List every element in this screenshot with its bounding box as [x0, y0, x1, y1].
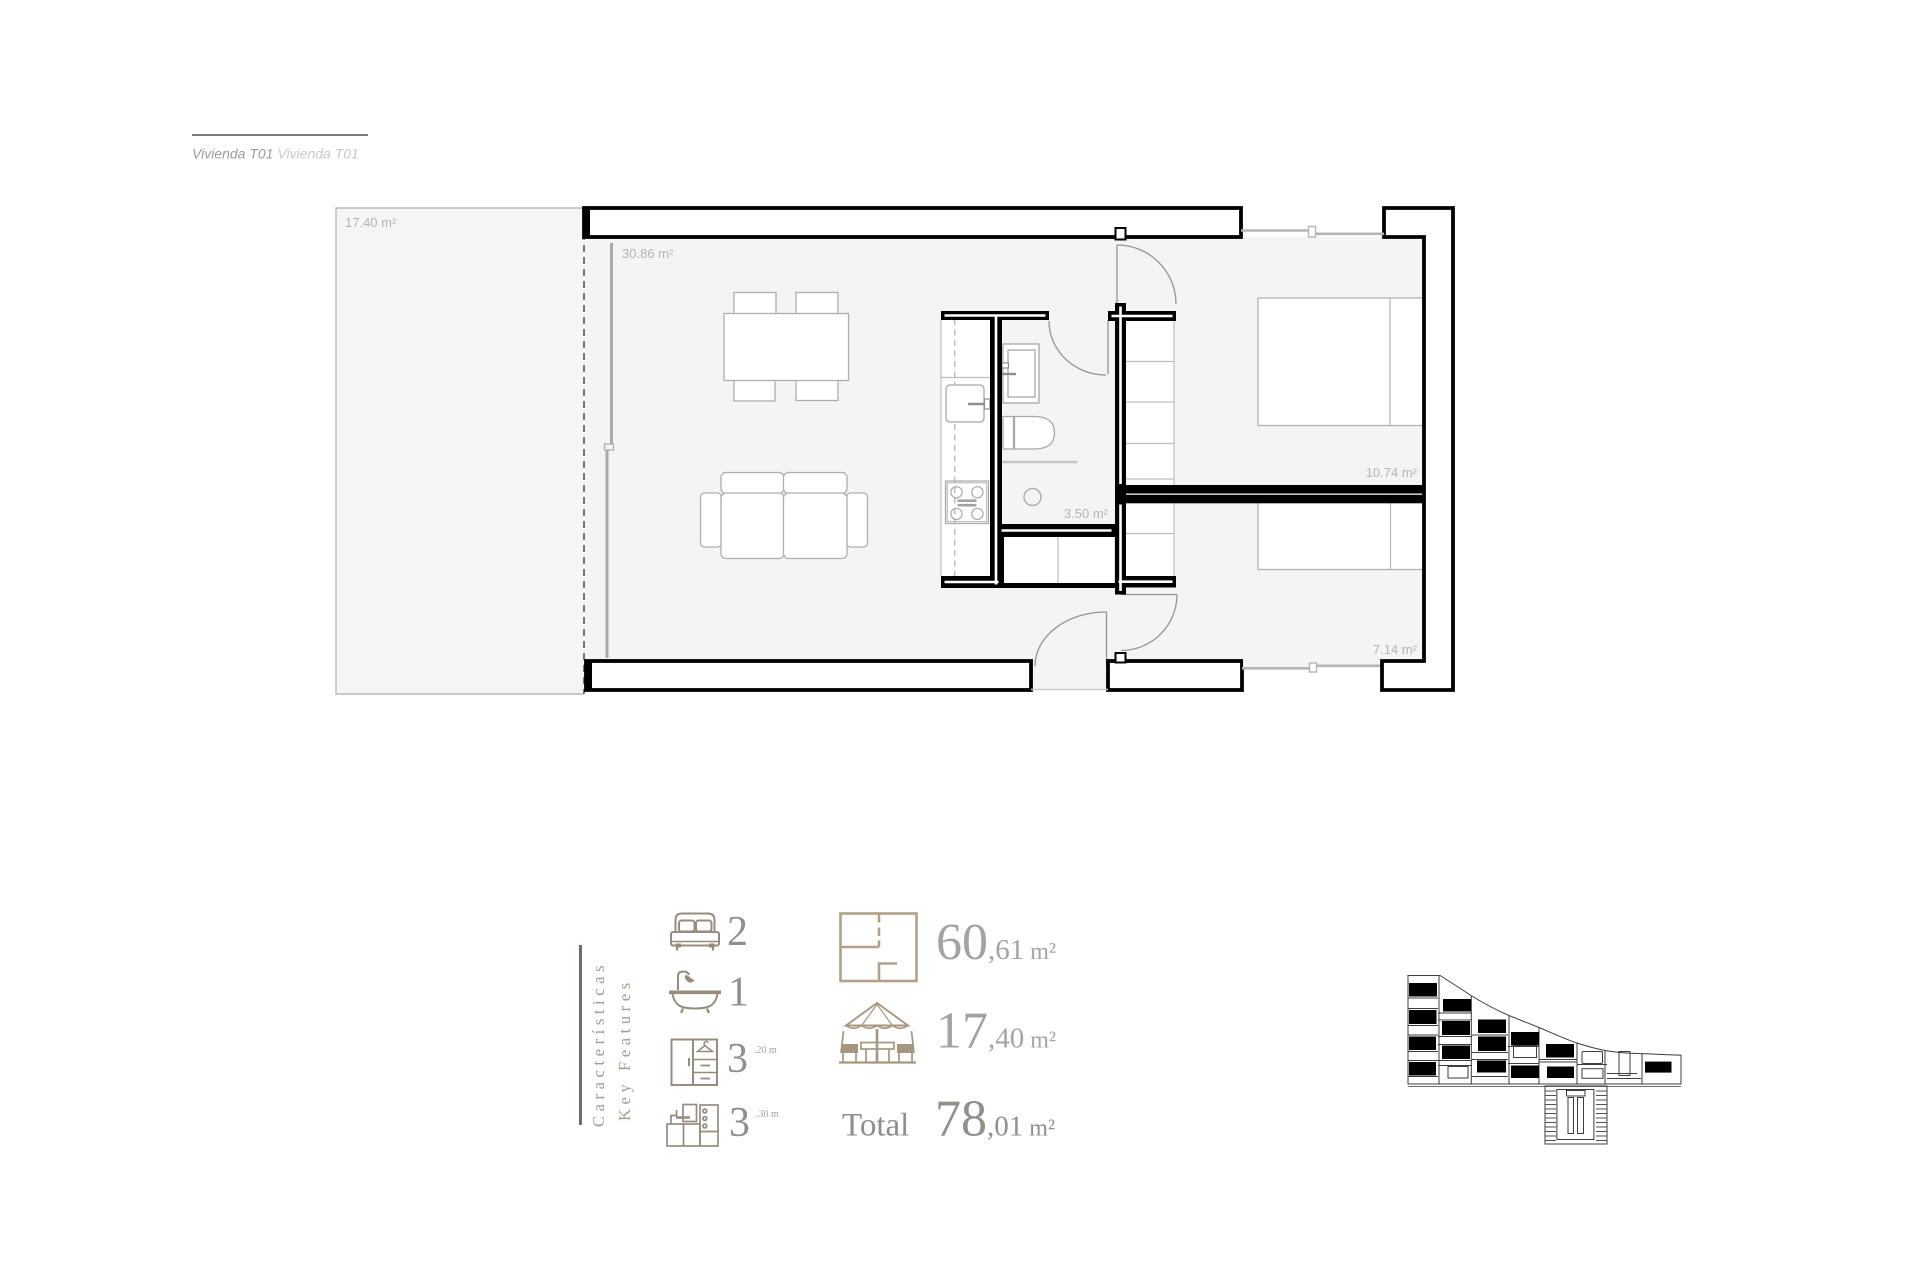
svg-text:17.40 m²: 17.40 m² [345, 215, 397, 230]
svg-text:Key Features: Key Features [615, 978, 634, 1121]
svg-text:30.86 m²: 30.86 m² [622, 246, 674, 261]
svg-text:2: 2 [727, 909, 748, 955]
svg-text:Vivienda T01 Vivienda T01: Vivienda T01 Vivienda T01 [192, 146, 359, 162]
svg-text:3: 3 [729, 1100, 750, 1146]
svg-text:.20 m: .20 m [754, 1045, 777, 1056]
svg-text:10.74 m²: 10.74 m² [1366, 465, 1418, 480]
svg-text:Total: Total [842, 1108, 909, 1144]
svg-text:7.14 m²: 7.14 m² [1373, 642, 1418, 657]
svg-text:3: 3 [727, 1036, 748, 1082]
svg-text:3.50 m²: 3.50 m² [1064, 506, 1109, 521]
svg-text:1: 1 [728, 970, 749, 1016]
svg-text:Características: Características [589, 961, 608, 1127]
svg-text:.30 m: .30 m [756, 1109, 779, 1120]
